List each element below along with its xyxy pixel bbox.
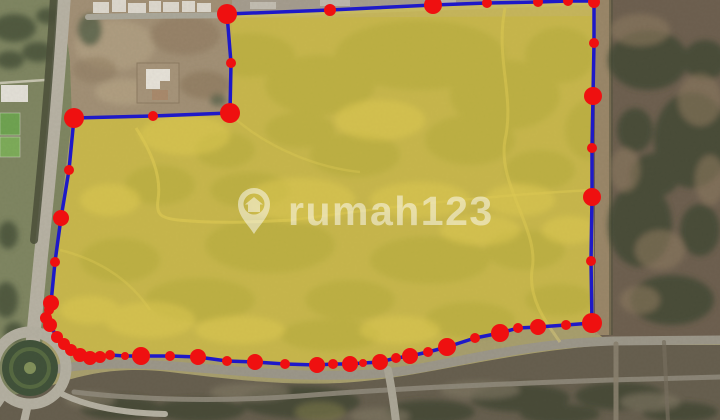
vertex-dot	[582, 313, 602, 333]
vertex-dot	[51, 331, 63, 343]
vertex-dot	[391, 353, 401, 363]
vertex-dot	[121, 352, 129, 360]
satellite-map: rumah123	[0, 0, 720, 420]
vertex-dot	[342, 356, 358, 372]
vertex-dot	[513, 323, 523, 333]
vertex-dot	[584, 87, 602, 105]
vertex-dot	[222, 356, 232, 366]
vertex-dot	[402, 348, 418, 364]
vertex-dot	[148, 111, 158, 121]
vertex-dot	[324, 4, 336, 16]
watermark-brand-text: rumah123	[288, 188, 494, 234]
vertex-dot	[359, 359, 367, 367]
vertex-dot	[64, 108, 84, 128]
vertex-dot	[470, 333, 480, 343]
vertex-dot	[226, 58, 236, 68]
vertex-dot	[132, 347, 150, 365]
vertex-dot	[309, 357, 325, 373]
vertex-dot	[372, 354, 388, 370]
vertex-dot	[491, 324, 509, 342]
vertex-dot	[105, 350, 115, 360]
vertex-dot	[438, 338, 456, 356]
vertex-dot	[64, 165, 74, 175]
vertex-dot	[583, 188, 601, 206]
vertex-dot	[328, 359, 338, 369]
vertex-dot	[53, 210, 69, 226]
vertex-dot	[165, 351, 175, 361]
vertex-dot	[586, 256, 596, 266]
vertex-dot	[589, 38, 599, 48]
vertex-dot	[50, 257, 60, 267]
vertex-dot	[247, 354, 263, 370]
map-canvas: rumah123	[0, 0, 720, 420]
vertex-dot	[190, 349, 206, 365]
vertex-dot	[587, 143, 597, 153]
vertex-dot	[43, 295, 59, 311]
vertex-dot	[220, 103, 240, 123]
vertex-dot	[530, 319, 546, 335]
vertex-dot	[217, 4, 237, 24]
vertex-dot	[423, 347, 433, 357]
vertex-dot	[280, 359, 290, 369]
vertex-dot	[561, 320, 571, 330]
